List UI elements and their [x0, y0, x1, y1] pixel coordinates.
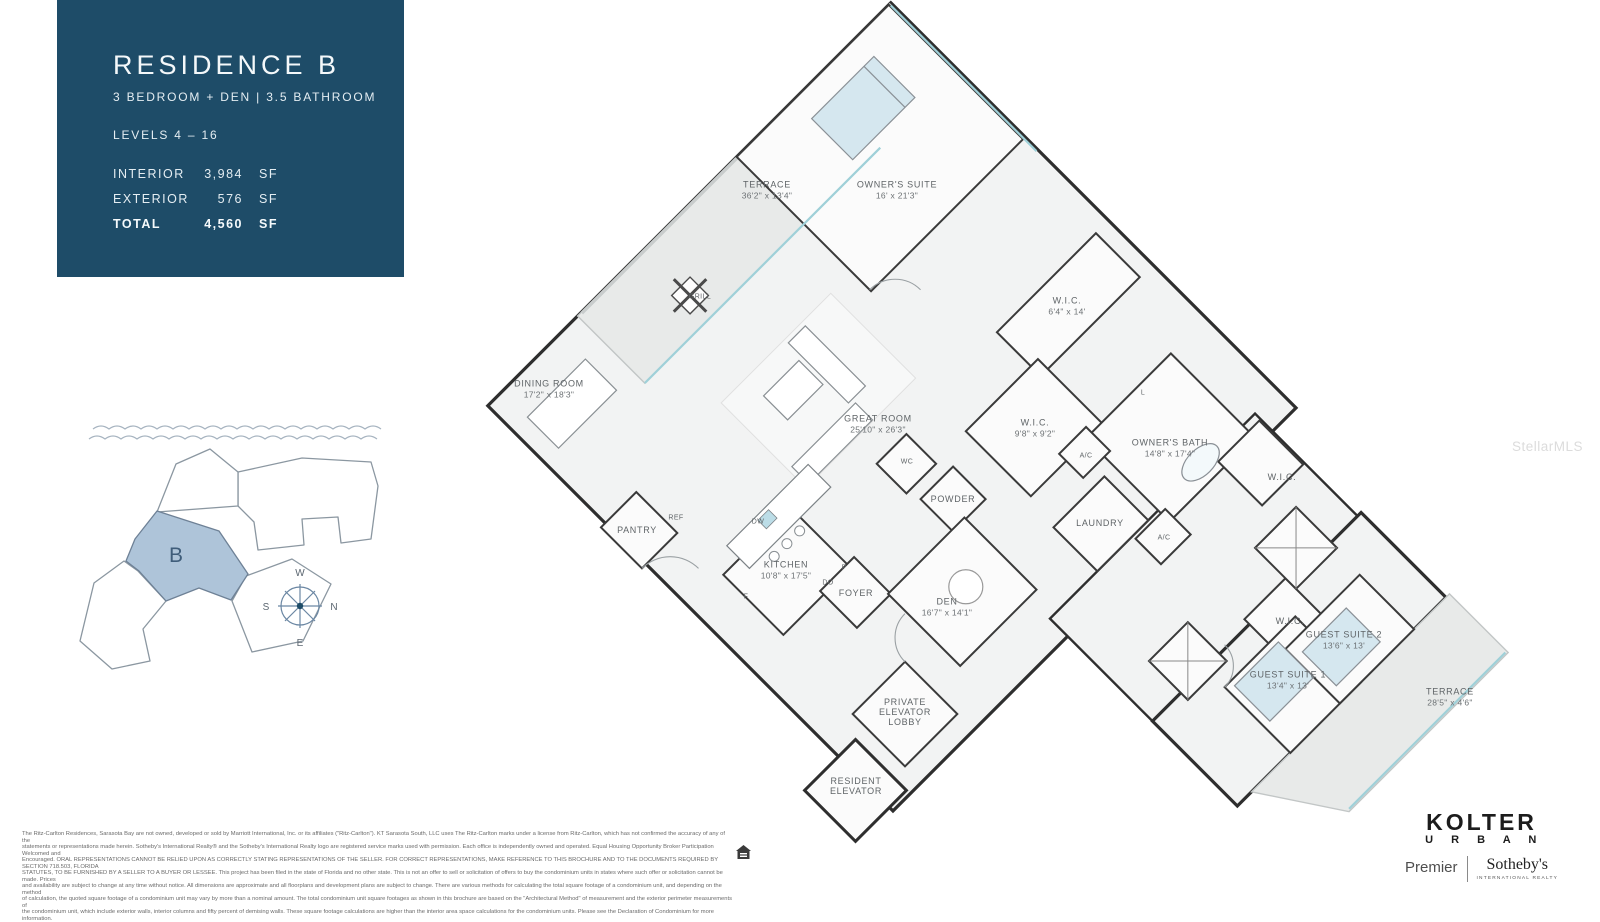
room-label-ac-2: A/C — [1158, 535, 1171, 542]
room-label-guest-suite-2: GUEST SUITE 213'6" x 13' — [1306, 630, 1382, 651]
room-label-linen: L — [1141, 390, 1145, 397]
compass-east: E — [297, 638, 304, 649]
stellar-mls-watermark: StellarMLS — [1512, 439, 1583, 454]
room-label-guest-wic: W.I.C. — [1276, 616, 1305, 626]
kolter-urban-label: U R B A N — [1411, 834, 1558, 846]
legal-disclaimer: The Ritz-Carlton Residences, Sarasota Ba… — [22, 831, 734, 922]
room-label-p: P — [841, 565, 846, 572]
room-label-wic-1: W.I.C.6'4" x 14' — [1048, 296, 1085, 317]
room-label-freezer: F — [744, 594, 749, 601]
floorplan-brochure-page: { "info_panel": { "title": "RESIDENCE B"… — [0, 0, 1600, 899]
logo-divider — [1467, 856, 1468, 882]
room-label-wic-3: W.I.C. — [1268, 472, 1297, 482]
room-label-ac-1: A/C — [1080, 453, 1093, 460]
room-label-dw: DW — [752, 519, 764, 526]
room-label-pantry: PANTRY — [617, 525, 657, 535]
room-label-kitchen: KITCHEN10'8" x 17'5" — [761, 560, 812, 581]
room-label-laundry: LAUNDRY — [1076, 518, 1124, 528]
room-label-do: DO — [822, 580, 833, 587]
room-label-terrace-guest: TERRACE28'5" x 4'6" — [1426, 687, 1474, 708]
room-label-owners-bath: OWNER'S BATH14'8" x 17'4" — [1132, 438, 1208, 459]
room-label-guest-suite-1: GUEST SUITE 113'4" x 13' — [1250, 670, 1326, 691]
sothebys-logo: Sotheby's — [1486, 856, 1548, 873]
room-label-terrace-main: TERRACE36'2" x 13'4" — [742, 180, 793, 201]
compass-south: S — [263, 602, 270, 613]
unit-b-label: B — [169, 544, 183, 567]
compass-west: W — [295, 568, 305, 579]
room-label-wic-2: W.I.C.9'8" x 9'2" — [1015, 418, 1055, 439]
site-plan: B W S N E — [80, 426, 381, 669]
developer-brokerage-logos: KOLTER U R B A N Premier Sotheby's INTER… — [1405, 812, 1558, 882]
floor-plan-drawing — [454, 3, 1525, 899]
room-label-foyer: FOYER — [839, 588, 874, 598]
water-waves-icon — [89, 436, 377, 439]
premier-label: Premier — [1405, 859, 1458, 876]
room-label-grill: GRILL — [689, 294, 711, 301]
kolter-logo: KOLTER — [1405, 812, 1558, 832]
room-label-dining-room: DINING ROOM17'2" x 18'3" — [514, 379, 584, 400]
room-label-private-elevator-lobby: PRIVATE ELEVATOR LOBBY — [865, 697, 945, 727]
room-label-powder: POWDER — [931, 494, 976, 504]
floorplan-artwork: B W S N E — [0, 0, 1600, 899]
room-label-ref: REF — [668, 515, 683, 522]
room-label-den: DEN16'7" x 14'1" — [922, 597, 973, 618]
room-label-owners-suite: OWNER'S SUITE16' x 21'3" — [857, 180, 937, 201]
room-label-great-room: GREAT ROOM25'10" x 26'3" — [844, 414, 912, 435]
room-label-resident-elevator: RESIDENT ELEVATOR — [824, 776, 888, 796]
sothebys-sub-label: INTERNATIONAL REALTY — [1477, 876, 1558, 881]
room-label-wc: WC — [901, 459, 913, 466]
water-waves-icon — [93, 426, 381, 429]
compass-north: N — [330, 602, 337, 613]
